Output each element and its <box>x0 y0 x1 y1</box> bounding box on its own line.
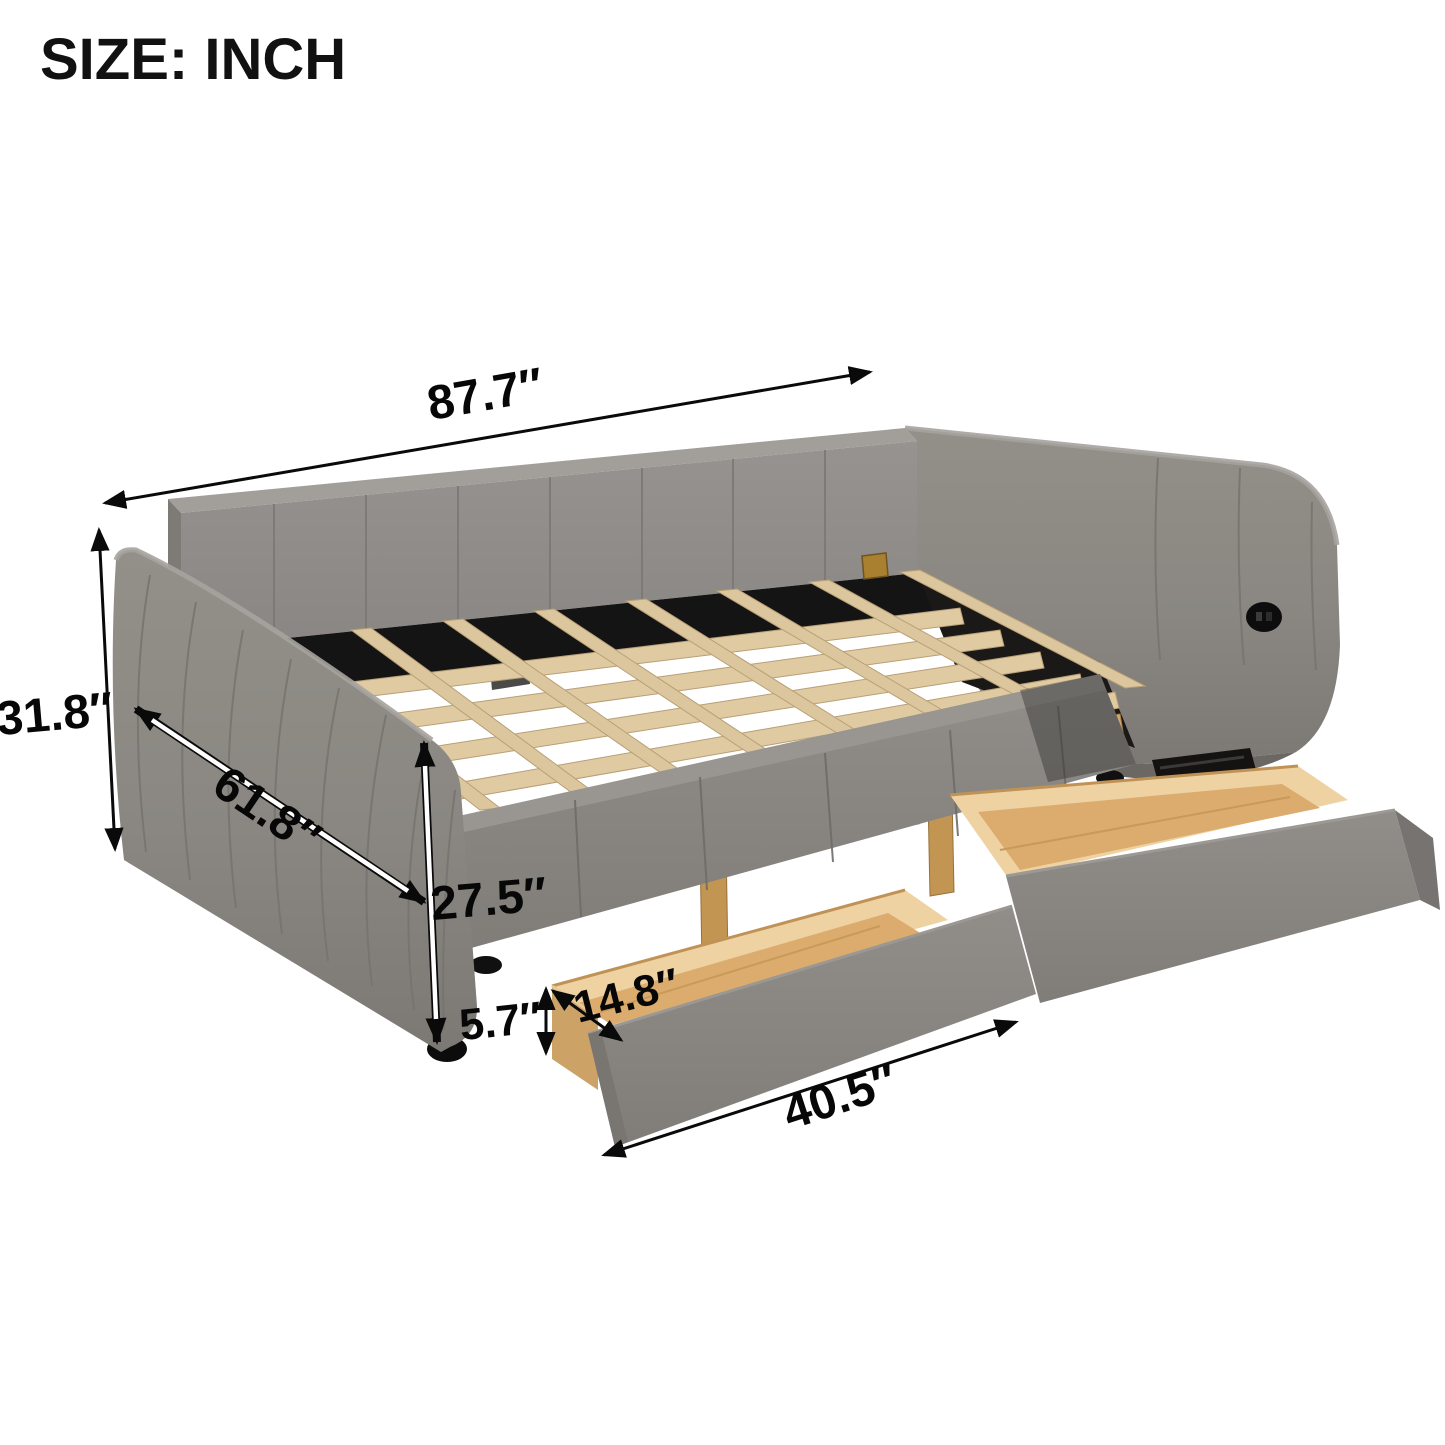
daybed-illustration: 87.7″ 31.8″ 61.8″ 27.5″ 5.7″ 14.8″ 40.5″ <box>0 0 1445 1445</box>
dim-drawer-height-label: 5.7″ <box>457 993 544 1050</box>
brass-bracket <box>862 553 888 579</box>
product-dimension-diagram: SIZE: INCH <box>0 0 1445 1445</box>
dim-overall-height: 31.8″ <box>0 530 115 849</box>
dim-platform-height-label: 27.5″ <box>428 868 549 931</box>
dim-overall-height-label: 31.8″ <box>0 683 115 746</box>
usb-port-icon <box>1246 602 1282 632</box>
dim-overall-width-label: 87.7″ <box>423 359 547 431</box>
rail-foot <box>470 956 502 974</box>
